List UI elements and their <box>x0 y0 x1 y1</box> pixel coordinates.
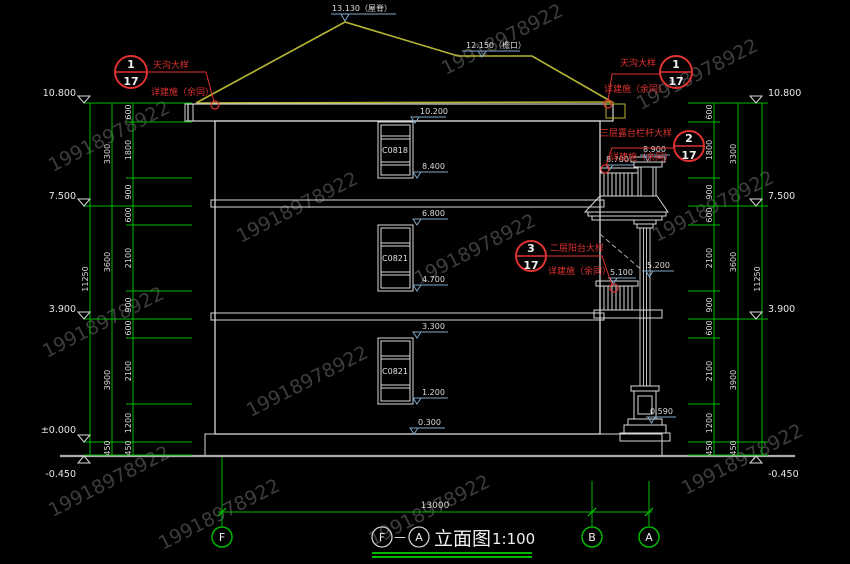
dim-value: 2100 <box>705 248 714 268</box>
callout-sheet: 17 <box>523 259 538 272</box>
total-height-dim: 11250 <box>81 266 90 291</box>
level-label: 10.800 <box>768 88 801 99</box>
story-dim: 3900 <box>103 370 112 390</box>
bottom-total-dim: 13000 <box>421 501 450 511</box>
level-label: 7.500 <box>49 191 76 202</box>
column-base-elevation: 0.590 <box>650 407 673 416</box>
total-height-dim: 11250 <box>753 266 762 291</box>
dim-value: 1200 <box>705 413 714 433</box>
dim-value: 2100 <box>124 361 133 381</box>
dim-value: 900 <box>705 184 714 199</box>
story-dim: 450 <box>103 440 112 455</box>
axis-letter: A <box>645 531 653 544</box>
title-bar: F — A 立面图 1:100 <box>372 527 535 557</box>
drawing-scale: 1:100 <box>492 530 535 548</box>
window-label: C0821 <box>382 367 408 376</box>
callout-note: 详建施（余同） <box>548 265 611 277</box>
window-label: C0821 <box>382 254 408 263</box>
dim-value: 600 <box>124 207 133 222</box>
callout-note: 详建施（余同） <box>610 151 673 163</box>
dim-value: 600 <box>705 320 714 335</box>
level-label: 3.900 <box>768 304 795 315</box>
window1-sill-elevation: 8.400 <box>422 162 445 171</box>
story-dim: 3900 <box>729 370 738 390</box>
story-dim: 3300 <box>103 144 112 164</box>
window2-head-elevation: 6.800 <box>422 209 445 218</box>
level-label: 3.900 <box>49 304 76 315</box>
dim-value: 900 <box>124 297 133 312</box>
dim-value: 450 <box>124 440 133 455</box>
callout-title: 天沟大样 <box>620 57 656 69</box>
callout-title: 二层阳台大样 <box>550 242 604 254</box>
balcony-railing-elevation: 5.100 <box>610 268 633 277</box>
title-axis-from: F <box>379 531 385 544</box>
dim-value: 2100 <box>705 361 714 381</box>
drawing-title: 立面图 <box>434 528 491 550</box>
callout-sheet: 17 <box>681 149 696 162</box>
callout-title: 天沟大样 <box>153 59 189 71</box>
dim-value: 1800 <box>705 140 714 160</box>
balcony-column-elevation: 5.200 <box>647 261 670 270</box>
callout-number: 1 <box>672 58 680 71</box>
level-label: -0.450 <box>45 469 76 480</box>
callout-number: 2 <box>685 132 693 145</box>
level-label: 10.800 <box>43 88 76 99</box>
callout-note: 详建施（余同） <box>151 86 214 98</box>
callout-number: 3 <box>527 242 535 255</box>
dim-value: 450 <box>705 440 714 455</box>
level-label: -0.450 <box>768 469 799 480</box>
callout-note: 详建施（余同） <box>604 83 667 95</box>
window-label: C0818 <box>382 146 408 155</box>
level-label: 7.500 <box>768 191 795 202</box>
callout-sheet: 17 <box>123 75 138 88</box>
ridge-elevation-label: 13.130（屋脊） <box>332 3 392 13</box>
story-dim: 3600 <box>729 252 738 272</box>
callout-title: 三层露台栏杆大样 <box>600 127 672 139</box>
dim-value: 600 <box>705 207 714 222</box>
plinth-elevation: 0.300 <box>418 418 441 427</box>
window1-head-elevation: 10.200 <box>420 107 448 116</box>
eave-elevation-label: 12.150（檐口） <box>466 40 526 50</box>
dim-value: 1800 <box>124 140 133 160</box>
callout-number: 1 <box>127 58 135 71</box>
story-dim: 3600 <box>103 252 112 272</box>
callout-sheet: 17 <box>668 75 683 88</box>
story-dim: 3300 <box>729 144 738 164</box>
dim-value: 600 <box>124 320 133 335</box>
elevation-drawing-canvas[interactable]: 19918978922 19918978922 19918978922 1991… <box>0 0 850 564</box>
axis-letter: B <box>588 531 596 544</box>
dim-value: 900 <box>124 184 133 199</box>
axis-letter: F <box>219 531 225 544</box>
story-dim: 450 <box>729 440 738 455</box>
dim-value: 600 <box>705 104 714 119</box>
title-axis-to: A <box>415 531 423 544</box>
level-label: ±0.000 <box>41 425 76 436</box>
dim-value: 1200 <box>124 413 133 433</box>
dim-value: 900 <box>705 297 714 312</box>
window2-sill-elevation: 4.700 <box>422 275 445 284</box>
title-separator: — <box>394 530 406 544</box>
dim-value: 600 <box>124 104 133 119</box>
window3-head-elevation: 3.300 <box>422 322 445 331</box>
window3-sill-elevation: 1.200 <box>422 388 445 397</box>
dim-value: 2100 <box>124 248 133 268</box>
cad-elevation-sheet: 19918978922 19918978922 19918978922 1991… <box>0 0 850 564</box>
